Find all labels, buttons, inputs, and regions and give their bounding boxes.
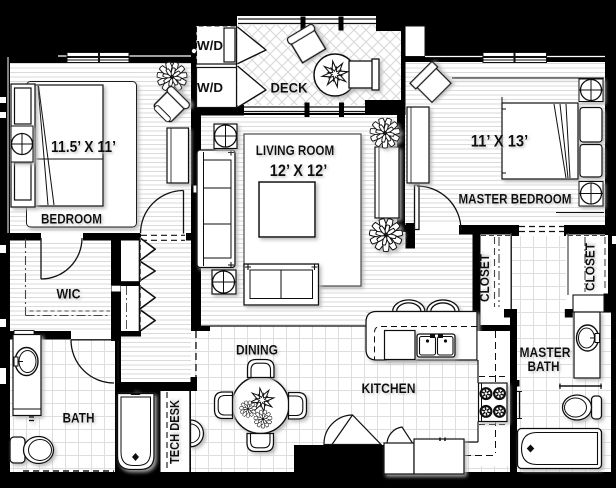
svg-text:11’ X 13’: 11’ X 13’: [471, 133, 529, 151]
svg-text:DINING: DINING: [236, 342, 278, 358]
svg-text:LIVING ROOM: LIVING ROOM: [256, 142, 335, 158]
svg-text:TECH DESK: TECH DESK: [167, 399, 182, 464]
svg-text:WIC: WIC: [57, 287, 81, 302]
svg-text:W/D: W/D: [197, 81, 223, 95]
svg-text:CLOSET: CLOSET: [583, 243, 598, 291]
svg-text:BATH: BATH: [63, 410, 95, 426]
svg-text:DECK: DECK: [271, 80, 308, 96]
svg-text:KITCHEN: KITCHEN: [362, 380, 416, 396]
svg-text:BATH: BATH: [528, 358, 560, 374]
svg-text:W/D: W/D: [197, 39, 223, 53]
svg-text:12’ X 12’: 12’ X 12’: [270, 162, 328, 180]
svg-text:BEDROOM: BEDROOM: [41, 211, 102, 227]
svg-text:CLOSET: CLOSET: [477, 254, 492, 302]
svg-text:11.5’ X 11’: 11.5’ X 11’: [51, 139, 116, 156]
svg-text:MASTER BEDROOM: MASTER BEDROOM: [459, 191, 572, 207]
